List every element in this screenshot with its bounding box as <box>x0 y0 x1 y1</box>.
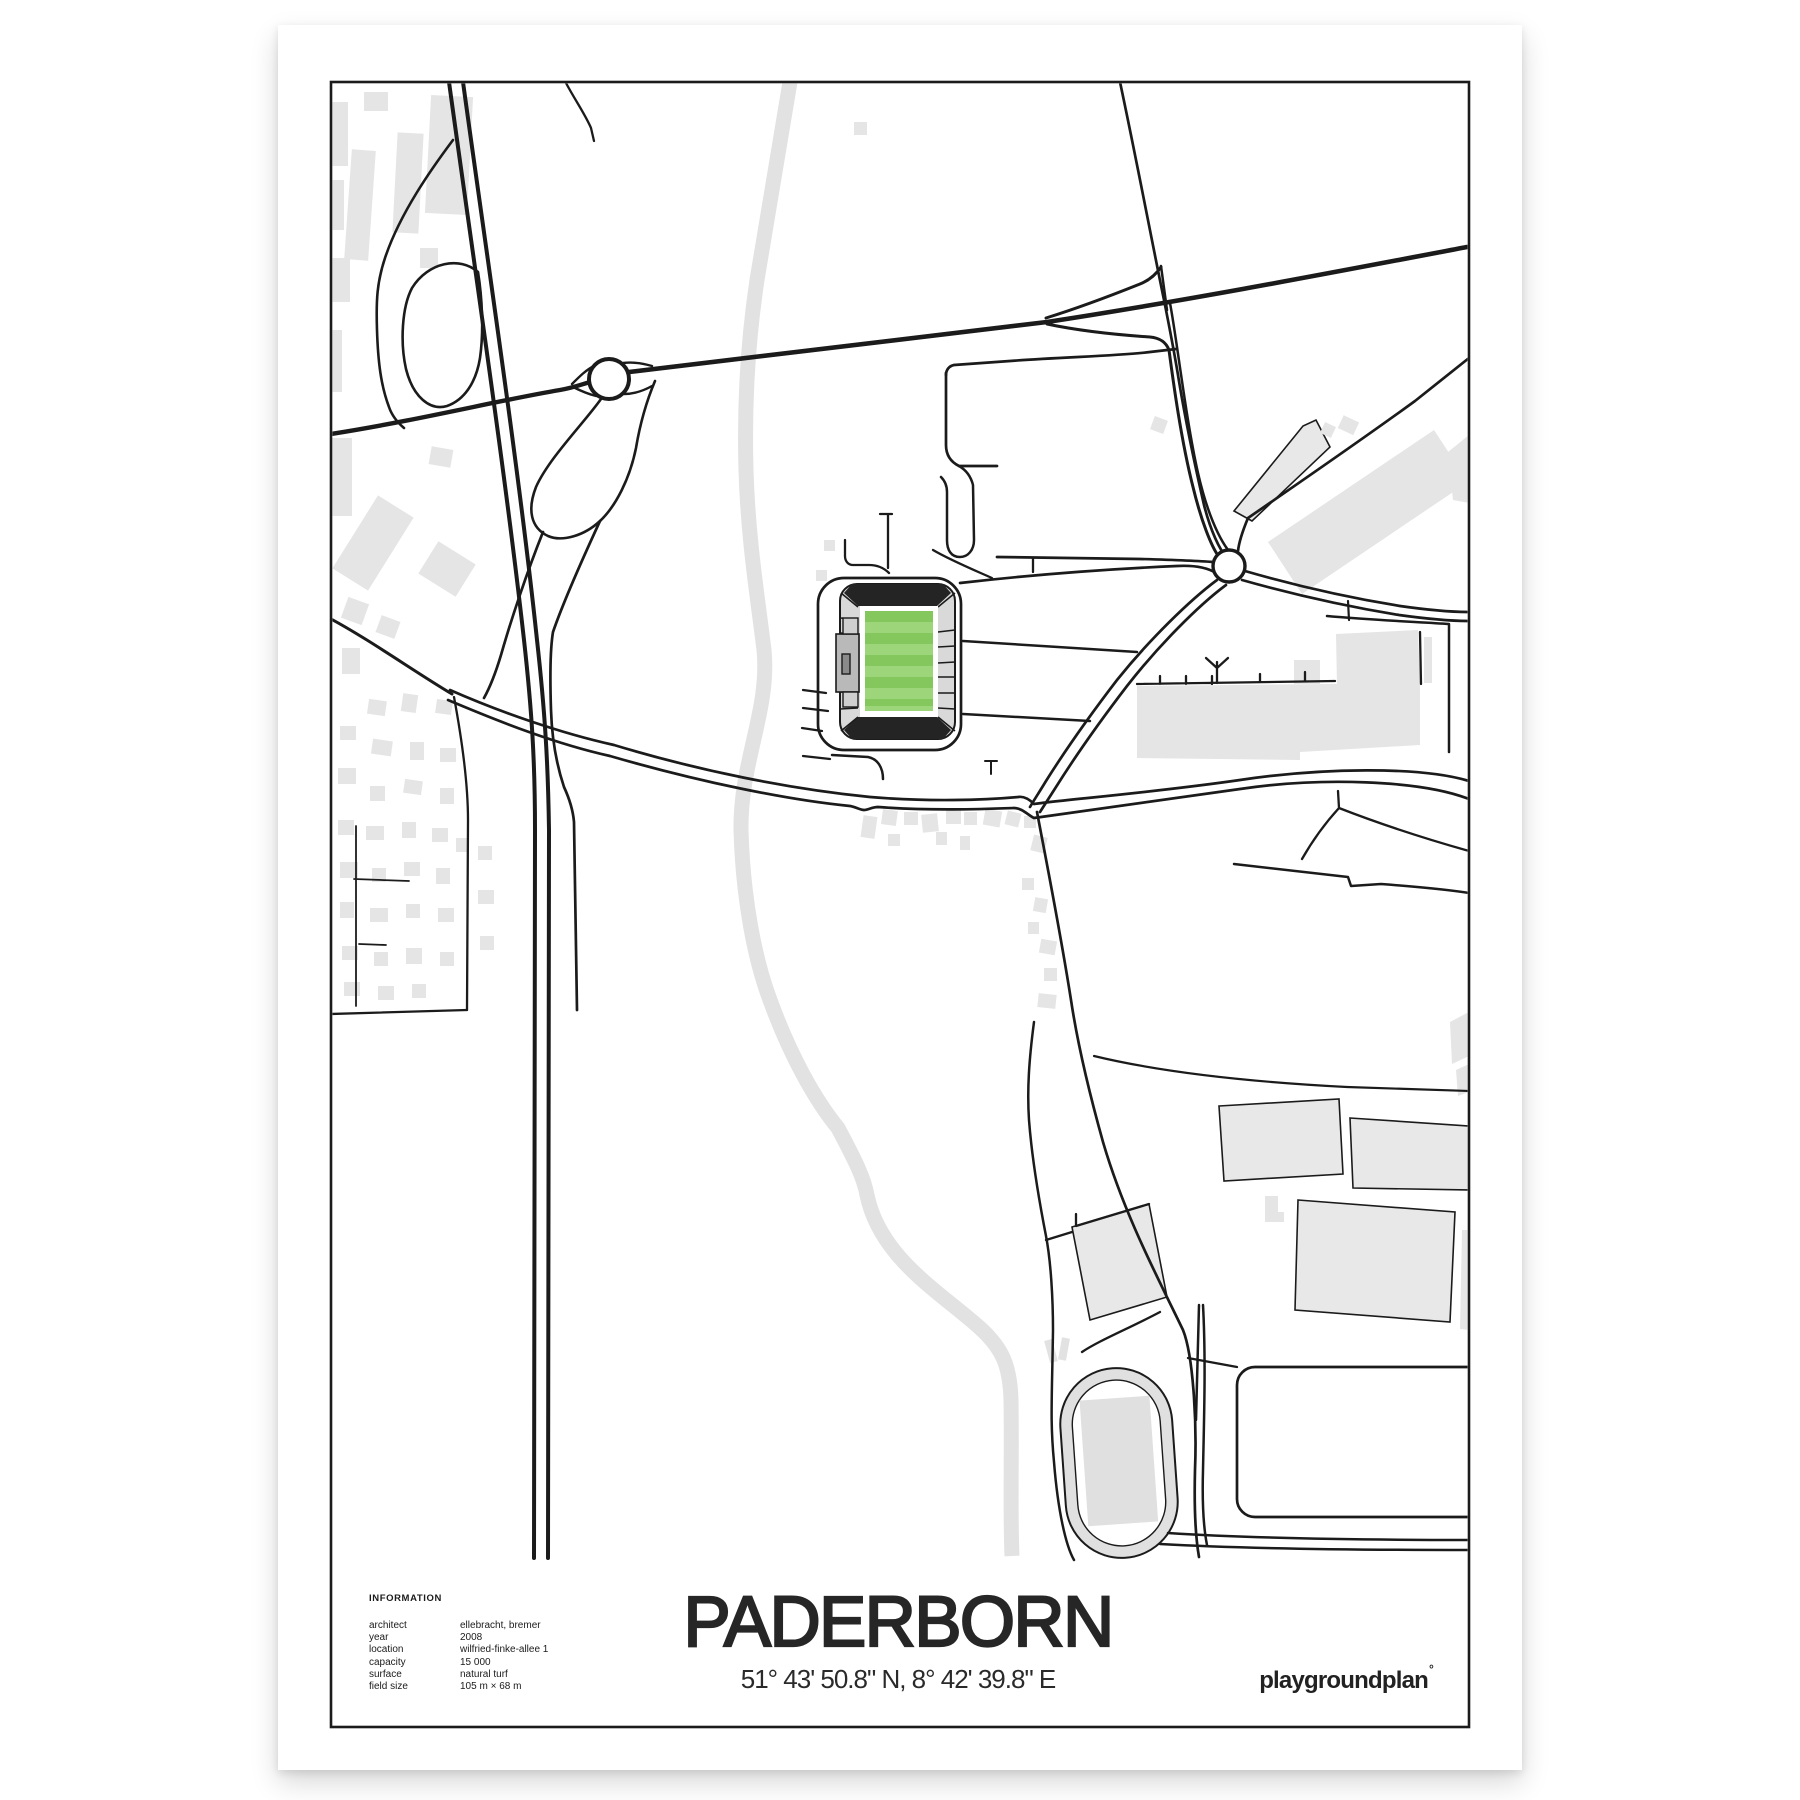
svg-text:architect: architect <box>369 1620 407 1631</box>
svg-text:INFORMATION: INFORMATION <box>369 1593 442 1604</box>
svg-text:105 m × 68 m: 105 m × 68 m <box>460 1681 521 1692</box>
svg-text:°: ° <box>1429 1662 1434 1676</box>
svg-text:field size: field size <box>369 1681 408 1692</box>
svg-text:location: location <box>369 1644 403 1655</box>
svg-text:wilfried-finke-allee 1: wilfried-finke-allee 1 <box>459 1644 549 1655</box>
svg-text:natural turf: natural turf <box>460 1669 508 1680</box>
svg-text:playgroundplan: playgroundplan <box>1259 1667 1428 1694</box>
svg-text:ellebracht, bremer: ellebracht, bremer <box>460 1620 541 1631</box>
svg-text:year: year <box>369 1632 389 1643</box>
svg-text:15 000: 15 000 <box>460 1657 491 1668</box>
svg-text:capacity: capacity <box>369 1657 406 1668</box>
svg-text:2008: 2008 <box>460 1632 483 1643</box>
svg-text:PADERBORN: PADERBORN <box>683 1583 1112 1662</box>
svg-text:51° 43' 50.8" N, 8° 42' 39.8": 51° 43' 50.8" N, 8° 42' 39.8" E <box>741 1664 1056 1694</box>
svg-text:surface: surface <box>369 1669 402 1680</box>
